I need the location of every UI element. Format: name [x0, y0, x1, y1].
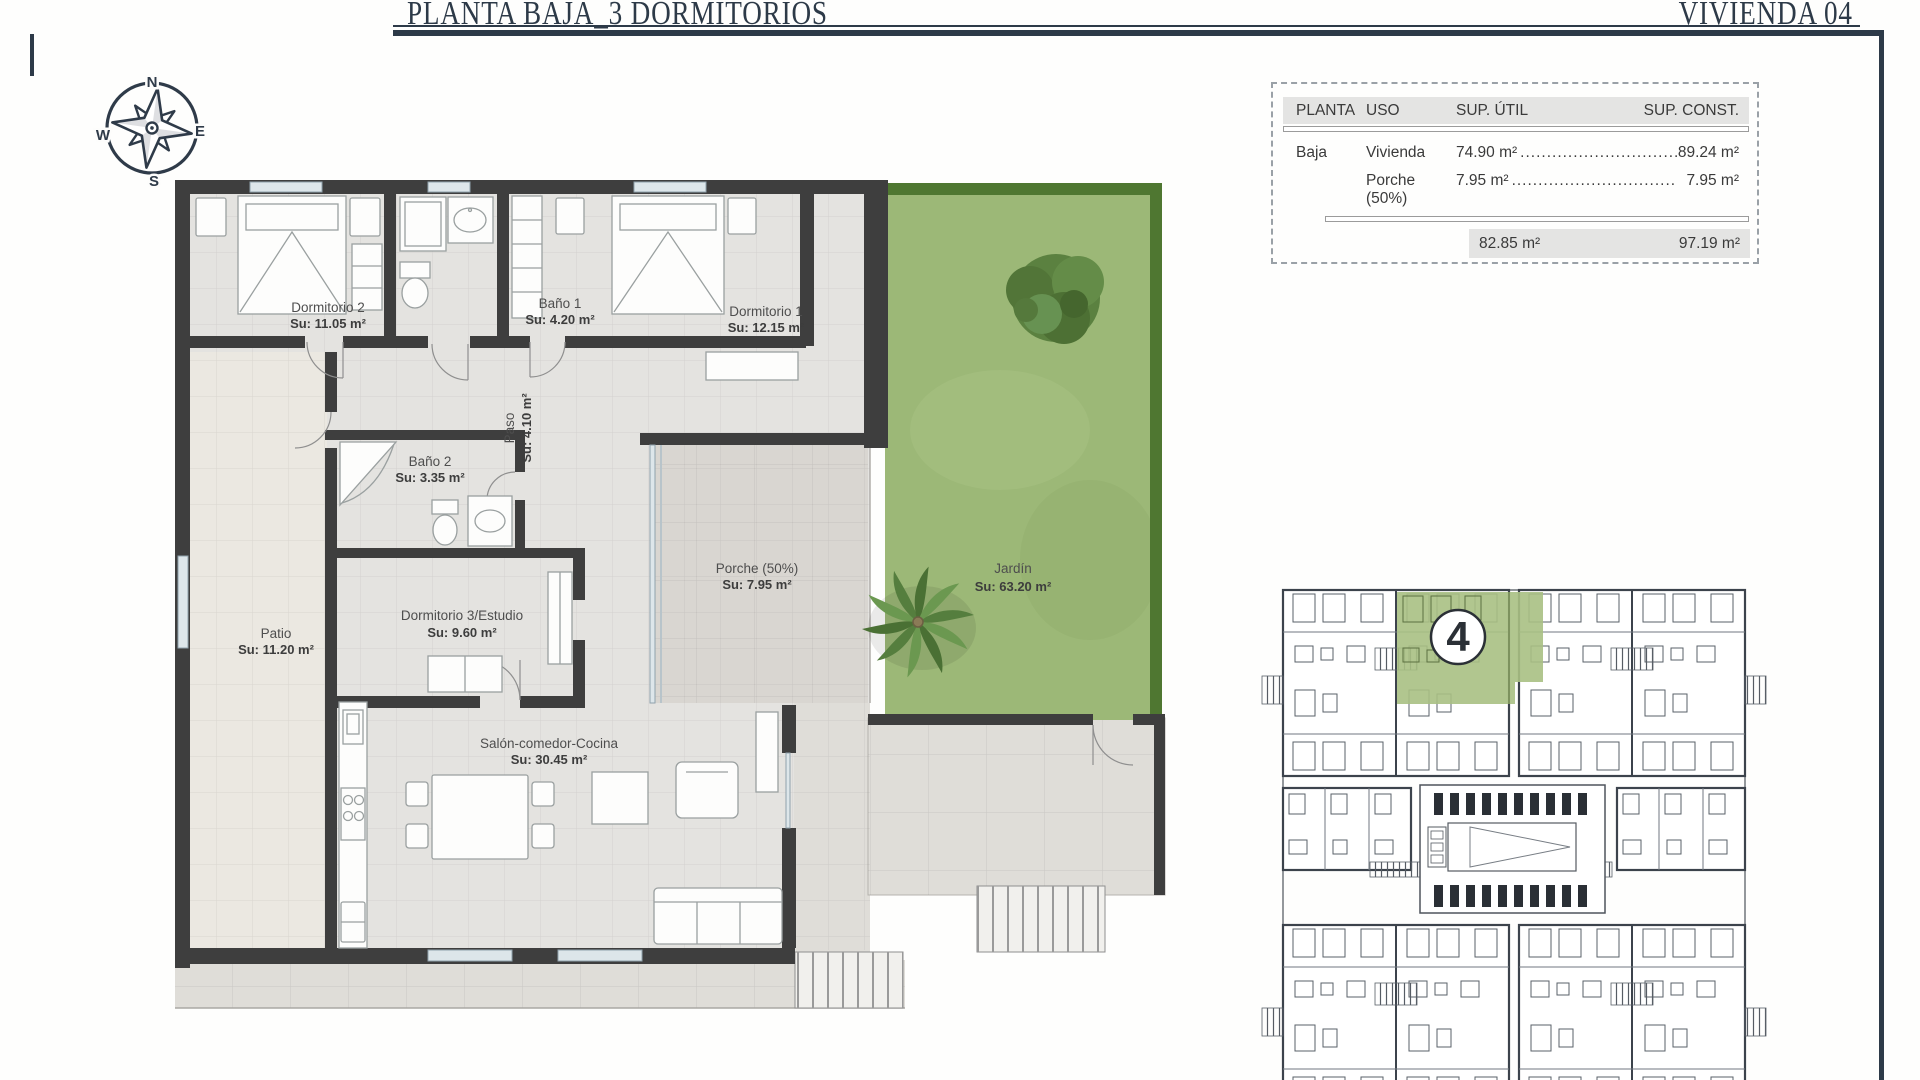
leader-dots: ........................................ — [1509, 172, 1677, 190]
porche-label: Porche (50%) Su: 7.95 m² — [716, 561, 799, 592]
svg-text:Porche (50%): Porche (50%) — [716, 561, 799, 576]
svg-text:Su: 11.20 m²: Su: 11.20 m² — [238, 642, 315, 657]
svg-text:Salón-comedor-Cocina: Salón-comedor-Cocina — [480, 736, 619, 751]
svg-text:Su: 4.20 m²: Su: 4.20 m² — [525, 312, 595, 327]
svg-text:Su: 7.95 m²: Su: 7.95 m² — [722, 577, 792, 592]
compass-rose: N E S W — [96, 74, 205, 190]
cell-sup-const: 89.24 m² — [1677, 144, 1749, 162]
svg-text:Dormitorio 3/Estudio: Dormitorio 3/Estudio — [401, 608, 523, 623]
cell-sup-util: 74.90 m² — [1456, 144, 1517, 162]
compass-w-label: W — [96, 127, 111, 144]
area-summary-table: PLANTA USO SUP. ÚTIL SUP. CONST. Baja Vi… — [1271, 82, 1759, 264]
compass-n-label: N — [147, 74, 158, 91]
compass-s-label: S — [149, 173, 159, 190]
table-rule-top — [1283, 126, 1749, 132]
svg-text:Jardín: Jardín — [994, 561, 1032, 576]
hall-closet — [706, 352, 798, 380]
col-uso: USO — [1366, 102, 1456, 120]
total-sup-util: 82.85 m² — [1479, 235, 1540, 253]
svg-text:Dormitorio 2: Dormitorio 2 — [291, 300, 365, 315]
tv-unit — [756, 712, 778, 792]
col-sup-const: SUP. CONST. — [1644, 102, 1749, 120]
highlight-area-tab — [1397, 682, 1515, 704]
cell-sup-const: 7.95 m² — [1677, 172, 1749, 190]
svg-text:Baño 2: Baño 2 — [409, 454, 452, 469]
site-plan: 4 — [1262, 590, 1766, 1080]
dormitorio1-label: Dormitorio 1 Su: 12.15 m² — [728, 304, 805, 335]
svg-text:Baño 1: Baño 1 — [539, 296, 582, 311]
floor-plan: Dormitorio 2 Su: 11.05 m² Baño 1 Su: 4.2… — [175, 180, 1165, 1008]
table-row-vivienda: Baja Vivienda 74.90 m² .................… — [1285, 144, 1749, 162]
svg-text:Su: 63.20 m²: Su: 63.20 m² — [975, 579, 1052, 594]
svg-text:Su: 12.15 m²: Su: 12.15 m² — [728, 320, 805, 335]
dormitorio2-label: Dormitorio 2 Su: 11.05 m² — [290, 300, 367, 331]
table-totals: 82.85 m² 97.19 m² — [1469, 229, 1750, 258]
col-sup-util: SUP. ÚTIL — [1456, 102, 1644, 120]
table-rule-bottom — [1325, 216, 1749, 222]
porch-sliding-glass — [650, 445, 655, 703]
svg-text:Su: 3.35 m²: Su: 3.35 m² — [395, 470, 465, 485]
cell-uso: Porche (50%) — [1366, 172, 1456, 208]
hedge-right — [1150, 183, 1162, 720]
col-planta: PLANTA — [1283, 102, 1366, 120]
unit-badge: 4 — [1446, 613, 1470, 660]
cell-uso: Vivienda — [1366, 144, 1456, 162]
svg-text:Paso: Paso — [502, 413, 517, 444]
hedge-top — [885, 183, 1162, 195]
cell-planta: Baja — [1285, 144, 1366, 162]
cell-sup-util: 7.95 m² — [1456, 172, 1509, 190]
svg-text:Su: 11.05 m²: Su: 11.05 m² — [290, 316, 367, 331]
salon-sliding-glass — [786, 753, 790, 828]
svg-text:Patio: Patio — [261, 626, 292, 641]
table-header: PLANTA USO SUP. ÚTIL SUP. CONST. — [1283, 97, 1749, 124]
pool — [1428, 823, 1576, 871]
svg-text:Su: 30.45 m²: Su: 30.45 m² — [511, 752, 588, 767]
total-sup-const: 97.19 m² — [1679, 235, 1740, 253]
kitchen-furniture — [339, 702, 367, 948]
pool-area — [1420, 785, 1605, 913]
table-row-porche: Porche (50%) 7.95 m² ...................… — [1285, 172, 1749, 208]
leader-dots: ........................................ — [1517, 144, 1677, 162]
svg-text:Dormitorio 1: Dormitorio 1 — [729, 304, 803, 319]
svg-text:Su: 9.60 m²: Su: 9.60 m² — [427, 625, 497, 640]
svg-text:Su: 4.10 m²: Su: 4.10 m² — [519, 393, 534, 463]
plan-sheet: N E S W — [0, 0, 1920, 1080]
compass-e-label: E — [195, 123, 205, 140]
